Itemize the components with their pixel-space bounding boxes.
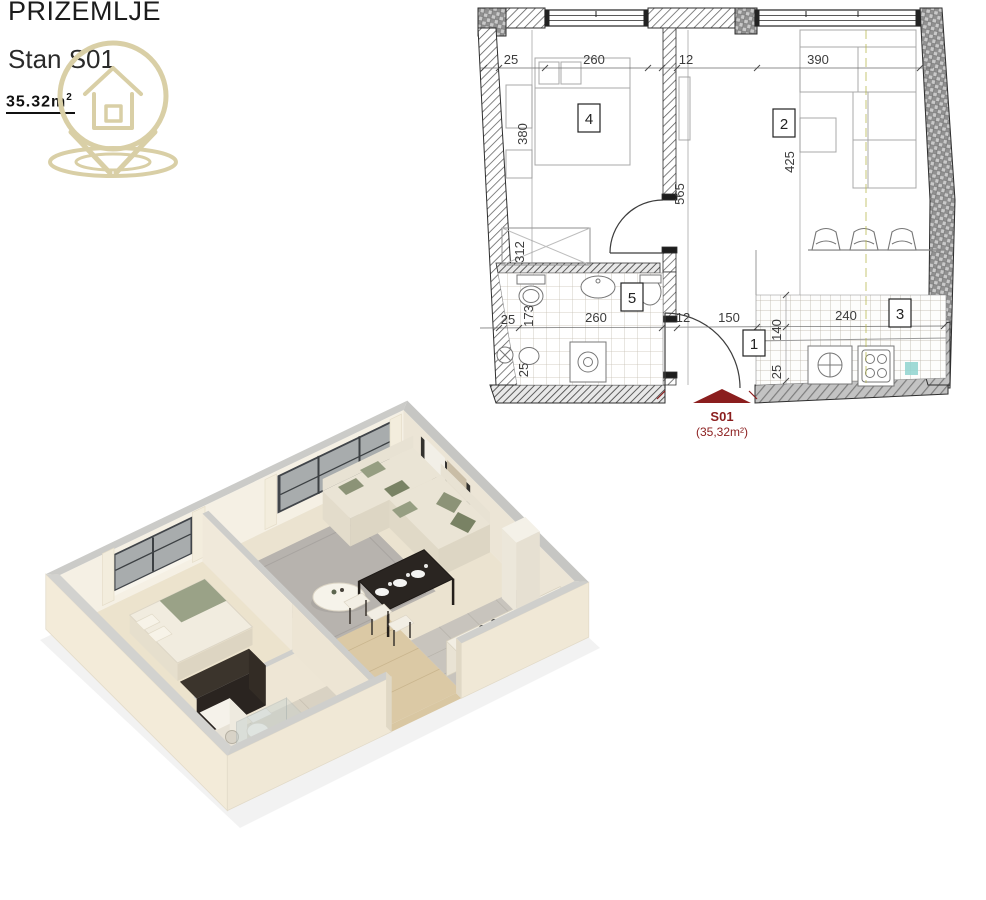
svg-text:260: 260 <box>585 310 607 325</box>
svg-text:25: 25 <box>501 312 515 327</box>
window-living <box>755 10 920 26</box>
svg-text:25: 25 <box>504 52 518 67</box>
svg-text:140: 140 <box>769 319 784 341</box>
svg-text:312: 312 <box>512 241 527 263</box>
svg-text:150: 150 <box>718 310 740 325</box>
bar-stools <box>812 229 916 251</box>
svg-text:380: 380 <box>515 123 530 145</box>
house-location-pin-icon <box>40 38 188 186</box>
svg-text:12: 12 <box>679 52 693 67</box>
floorplan-sheet: { "header": { "title": "PRIZEMLJE", "sub… <box>0 0 986 900</box>
svg-text:1: 1 <box>750 336 758 353</box>
bedroom-furniture <box>502 58 630 265</box>
svg-text:390: 390 <box>807 52 829 67</box>
svg-text:240: 240 <box>835 308 857 323</box>
living-furniture <box>679 30 916 188</box>
svg-text:565: 565 <box>672 183 687 205</box>
svg-text:4: 4 <box>585 111 593 128</box>
svg-text:3: 3 <box>896 306 904 323</box>
page-title: PRIZEMLJE <box>8 0 161 27</box>
svg-text:12: 12 <box>676 310 690 325</box>
entrance-marker: S01 (35,32m²) <box>657 389 757 439</box>
svg-text:2: 2 <box>780 116 788 133</box>
apartment-3d-render <box>0 380 620 900</box>
svg-text:425: 425 <box>782 151 797 173</box>
svg-text:5: 5 <box>628 290 636 307</box>
svg-text:173: 173 <box>521 305 536 327</box>
svg-text:25: 25 <box>516 363 531 377</box>
kitchen-cabinet <box>502 517 540 613</box>
marker-label: S01 <box>710 409 733 424</box>
marker-area: (35,32m²) <box>696 425 748 439</box>
window-bedroom <box>545 10 648 26</box>
svg-text:260: 260 <box>583 52 605 67</box>
svg-text:25: 25 <box>769 365 784 379</box>
